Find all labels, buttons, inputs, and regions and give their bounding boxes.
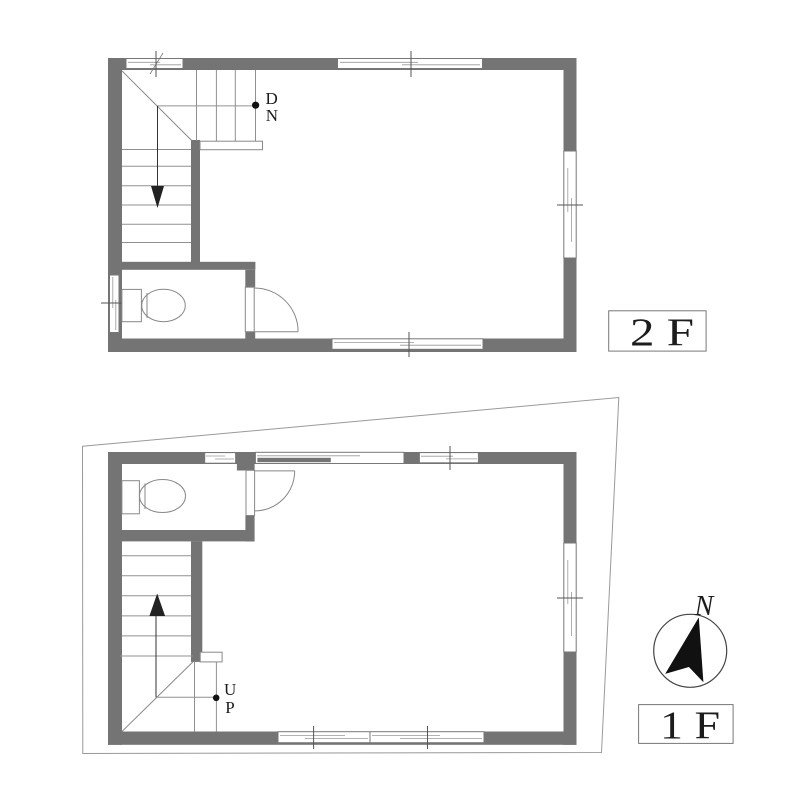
svg-text:U: U — [224, 680, 236, 699]
svg-text:2 F: 2 F — [630, 311, 694, 354]
svg-text:P: P — [225, 698, 234, 717]
svg-text:N: N — [694, 591, 715, 622]
svg-text:N: N — [266, 106, 278, 125]
svg-text:1 F: 1 F — [660, 704, 720, 747]
